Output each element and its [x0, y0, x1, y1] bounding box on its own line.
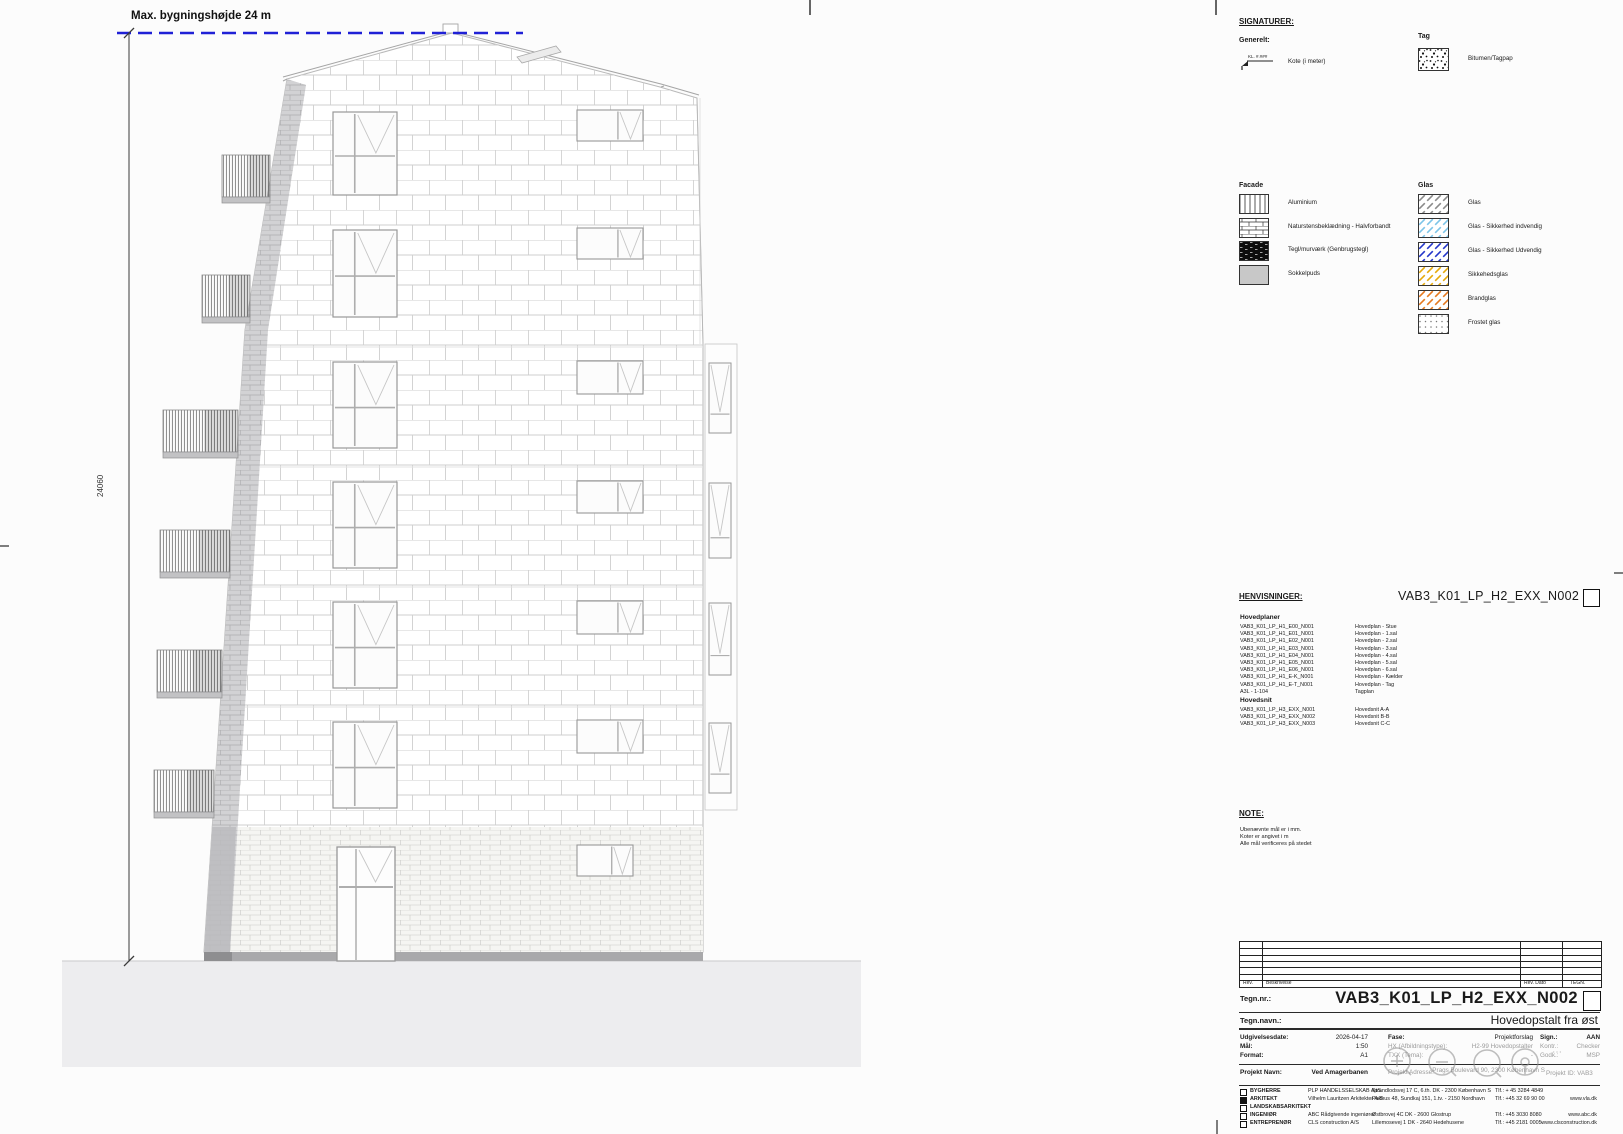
tegn-nr-box[interactable]	[1583, 991, 1601, 1011]
legend-label: Naturstensbeklædning - Halvforbandt	[1288, 224, 1391, 230]
party-role: INGENIØR	[1250, 1113, 1277, 1118]
party-web: www.vla.dk	[1540, 1097, 1597, 1102]
max-height-line: Max. bygningshøjde 24 m	[117, 10, 523, 33]
legend-label: Bitumen/Tagpap	[1468, 56, 1513, 62]
viewer-toolbar	[1382, 1044, 1562, 1082]
balcony	[202, 275, 250, 323]
party-address: Pakhus 48, Sundkaj 151, 1.tv. - 2150 Nor…	[1372, 1097, 1485, 1102]
building-facade	[204, 24, 737, 961]
sign-value: AAN	[1555, 1035, 1600, 1041]
udgivelsesdate-value: 2026-04-17	[1300, 1035, 1368, 1041]
party-checkbox[interactable]	[1240, 1113, 1247, 1120]
tegn-nr-value: VAB3_K01_LP_H2_EXX_N002	[1320, 990, 1578, 1007]
kote-label: Kote (i meter)	[1288, 59, 1325, 65]
window-large	[333, 112, 397, 195]
projekt-navn-value: Ved Amagerbanen	[1268, 1070, 1368, 1077]
ref-label: Hovedplan - Kælder	[1355, 675, 1403, 680]
party-web: www.abc.dk	[1540, 1113, 1597, 1118]
window-narrow	[709, 603, 731, 675]
party-role: ENTREPRENØR	[1250, 1121, 1291, 1126]
party-role: BYGHERRE	[1250, 1089, 1281, 1094]
format-label: Format:	[1240, 1053, 1263, 1059]
hovedplaner-title: Hovedplaner	[1240, 615, 1280, 622]
legend-label: Glas - Sikkerhed Udvendig	[1468, 248, 1542, 254]
hovedsnit-title: Hovedsnit	[1240, 698, 1272, 705]
revision-row-line	[1240, 961, 1601, 962]
facade-title: Facade	[1239, 182, 1263, 189]
height-dimension: 24060	[96, 28, 134, 966]
window-large	[333, 482, 397, 568]
tegn-nr-label: Tegn.nr.:	[1240, 995, 1271, 1003]
window-large	[333, 362, 397, 448]
party-role: ARKITEKT	[1250, 1097, 1277, 1102]
revision-row-line	[1240, 948, 1601, 949]
ref-code: A3L - 1-104	[1240, 690, 1268, 695]
search-button[interactable]	[1474, 1050, 1501, 1077]
ref-code: VAB3_K01_LP_H1_E02_N001	[1240, 639, 1314, 644]
party-checkbox[interactable]	[1240, 1097, 1247, 1104]
party-phone: Tlf.: + 45 3284 4849	[1495, 1089, 1543, 1094]
svg-text:KL. #.###: KL. #.###	[1248, 54, 1268, 59]
party-role: LANDSKABSARKITEKT	[1250, 1105, 1311, 1110]
drawing-sheet: Max. bygningshøjde 24 m 24060 SIGNATURER…	[0, 0, 1623, 1134]
signaturer-title: SIGNATURER:	[1239, 18, 1294, 26]
note-line: Ubenævnte mål er i mm.	[1240, 828, 1301, 834]
swatch-dots-icon	[1418, 314, 1449, 334]
party-checkbox[interactable]	[1240, 1089, 1247, 1096]
legend-label: Sikkehedsglas	[1468, 272, 1508, 278]
tegn-navn-label: Tegn.navn.:	[1240, 1017, 1282, 1025]
ref-code: VAB3_K01_LP_H3_EXX_N001	[1240, 708, 1315, 713]
more-options-button[interactable]: ⋯	[1552, 1048, 1563, 1058]
format-value: A1	[1300, 1053, 1368, 1059]
ref-code: VAB3_K01_LP_H1_E06_N001	[1240, 668, 1314, 673]
legend-label: Tegl/murværk (Genbrugstegl)	[1288, 247, 1368, 253]
swatch-dashlblue-icon	[1418, 218, 1449, 238]
revision-table: Rev. Beskrivelse Rev. Dato TEGN.	[1239, 941, 1602, 988]
window-horizontal	[577, 228, 643, 259]
dimension-value: 24060	[96, 474, 105, 497]
ref-code: VAB3_K01_LP_H1_E04_N001	[1240, 654, 1314, 659]
balcony	[222, 155, 270, 203]
window-narrow	[709, 723, 731, 793]
glas-title: Glas	[1418, 182, 1433, 189]
ref-label: Hovedplan - Stue	[1355, 625, 1397, 630]
party-phone: Tlf.: +45 3030 8080	[1495, 1113, 1542, 1118]
party-address: Strandlodsvej 17 C, 6.th. DK - 2300 Købe…	[1372, 1089, 1491, 1094]
window-large	[333, 602, 397, 688]
balcony	[160, 530, 230, 578]
party-company: -	[1308, 1105, 1310, 1110]
party-address: Lillemosevej 1 DK - 2640 Hedehusene	[1372, 1121, 1464, 1126]
party-company: CLS construction A/S	[1308, 1121, 1359, 1126]
party-company: PLP HANDELSSELSKAB ApS	[1308, 1089, 1381, 1094]
tag-title: Tag	[1418, 33, 1430, 40]
rev-col-header: Rev.	[1243, 981, 1253, 986]
fase-value: Projektforslag	[1440, 1035, 1533, 1041]
pan-button[interactable]	[1512, 1049, 1538, 1075]
party-phone: Tlf.: +45 2181 0005	[1495, 1121, 1542, 1126]
zoom-out-button[interactable]	[1429, 1049, 1456, 1076]
kote-symbol-icon: KL. #.###	[1239, 50, 1281, 74]
party-web: www.clsconstruction.dk	[1540, 1121, 1597, 1126]
ref-label: Hovedplan - 6.sal	[1355, 668, 1397, 673]
max-height-label: Max. bygningshøjde 24 m	[131, 10, 271, 22]
note-line: Alle mål verificeres på stedet	[1240, 842, 1312, 848]
doc-code: VAB3_K01_LP_H2_EXX_N002	[1398, 590, 1578, 603]
ref-label: Hovedplan - 5.sal	[1355, 661, 1397, 666]
ref-label: Hovedsnit B-B	[1355, 715, 1389, 720]
maal-value: 1:50	[1300, 1044, 1368, 1050]
ref-label: Hovedplan - 4.sal	[1355, 654, 1397, 659]
party-phone: Tlf.: +45 32 69 90 00	[1495, 1097, 1545, 1102]
balcony	[157, 650, 222, 698]
beskrivelse-col-header: Beskrivelse	[1266, 981, 1292, 986]
party-checkbox[interactable]	[1240, 1121, 1247, 1128]
window-horizontal	[577, 845, 633, 876]
ref-code: VAB3_K01_LP_H1_E-T_N001	[1240, 683, 1313, 688]
window-large	[333, 722, 397, 808]
window-horizontal	[577, 601, 643, 634]
swatch-solidgray-icon	[1239, 265, 1269, 285]
ref-label: Hovedsnit A-A	[1355, 708, 1389, 713]
window-horizontal	[577, 361, 643, 394]
sokkel	[204, 952, 703, 961]
entrance-door	[337, 847, 395, 961]
generelt-title: Generelt:	[1239, 37, 1270, 44]
ref-code: VAB3_K01_LP_H3_EXX_N003	[1240, 722, 1315, 727]
party-company: ABC Rådgivende ingeniører	[1308, 1113, 1375, 1118]
henvisninger-title: HENVISNINGER:	[1239, 593, 1303, 601]
window-large	[333, 230, 397, 317]
swatch-dashorange-icon	[1418, 290, 1449, 310]
udgivelsesdate-label: Udgivelsesdate:	[1240, 1035, 1288, 1041]
ref-label: Hovedplan - 1.sal	[1355, 632, 1397, 637]
note-title: NOTE:	[1239, 810, 1264, 818]
roof-vent	[443, 24, 458, 33]
swatch-dashblue-icon	[1418, 242, 1449, 262]
tegn-navn-value: Hovedopstalt fra øst	[1398, 1014, 1598, 1026]
party-checkbox[interactable]	[1240, 1105, 1247, 1112]
legend-label: Sokkelpuds	[1288, 271, 1320, 277]
ref-code: VAB3_K01_LP_H1_E01_N001	[1240, 632, 1314, 637]
kontr-value: Checker	[1560, 1044, 1600, 1050]
note-line: Koter er angivet i m	[1240, 835, 1289, 841]
ref-code: VAB3_K01_LP_H1_E05_N001	[1240, 661, 1314, 666]
window-horizontal	[577, 720, 643, 753]
window-narrow	[709, 483, 731, 558]
fase-label: Fase:	[1388, 1035, 1404, 1041]
revision-row-line	[1240, 974, 1601, 975]
ref-code: VAB3_K01_LP_H1_E03_N001	[1240, 647, 1314, 652]
swatch-dashyellow-icon	[1418, 266, 1449, 286]
swatch-vlines-icon	[1239, 194, 1269, 214]
zoom-in-button[interactable]	[1384, 1048, 1411, 1075]
legend-label: Glas - Sikkerhed indvendig	[1468, 224, 1542, 230]
ref-label: Hovedplan - 2.sal	[1355, 639, 1397, 644]
ref-code: VAB3_K01_LP_H1_E00_N001	[1240, 625, 1314, 630]
ref-code: VAB3_K01_LP_H3_EXX_N002	[1240, 715, 1315, 720]
legend-label: Aluminium	[1288, 200, 1317, 206]
revision-row-line	[1240, 955, 1601, 956]
balcony	[163, 410, 238, 458]
ref-label: Hovedsnit C-C	[1355, 722, 1390, 727]
balcony	[154, 770, 214, 818]
maal-label: Mål:	[1240, 1044, 1253, 1050]
ref-label: Tagplan	[1355, 690, 1374, 695]
window-narrow	[709, 363, 731, 433]
legend-label: Frostet glas	[1468, 320, 1500, 326]
window-horizontal	[577, 481, 643, 513]
ref-code: VAB3_K01_LP_H1_E-K_N001	[1240, 675, 1313, 680]
revision-row-line	[1240, 980, 1601, 981]
swatch-bitumen-icon	[1418, 48, 1449, 71]
revdato-col-header: Rev. Dato	[1524, 981, 1546, 986]
ref-label: Hovedplan - Tag	[1355, 683, 1394, 688]
window-horizontal	[577, 110, 643, 141]
legend-label: Brandglas	[1468, 296, 1496, 302]
swatch-darkbrick-icon	[1239, 241, 1269, 261]
doc-code-box[interactable]	[1583, 589, 1600, 607]
swatch-dashgray-icon	[1418, 194, 1449, 214]
revision-row-line	[1240, 967, 1601, 968]
tegn-col-header: TEGN.	[1570, 981, 1585, 986]
godk-value: MSP	[1560, 1053, 1600, 1059]
swatch-brick-icon	[1239, 218, 1269, 238]
legend-label: Glas	[1468, 200, 1481, 206]
ref-label: Hovedplan - 3.sal	[1355, 647, 1397, 652]
party-address: Østbrovej 4C DK - 2600 Glostrup	[1372, 1113, 1451, 1118]
terrain	[62, 961, 861, 1067]
